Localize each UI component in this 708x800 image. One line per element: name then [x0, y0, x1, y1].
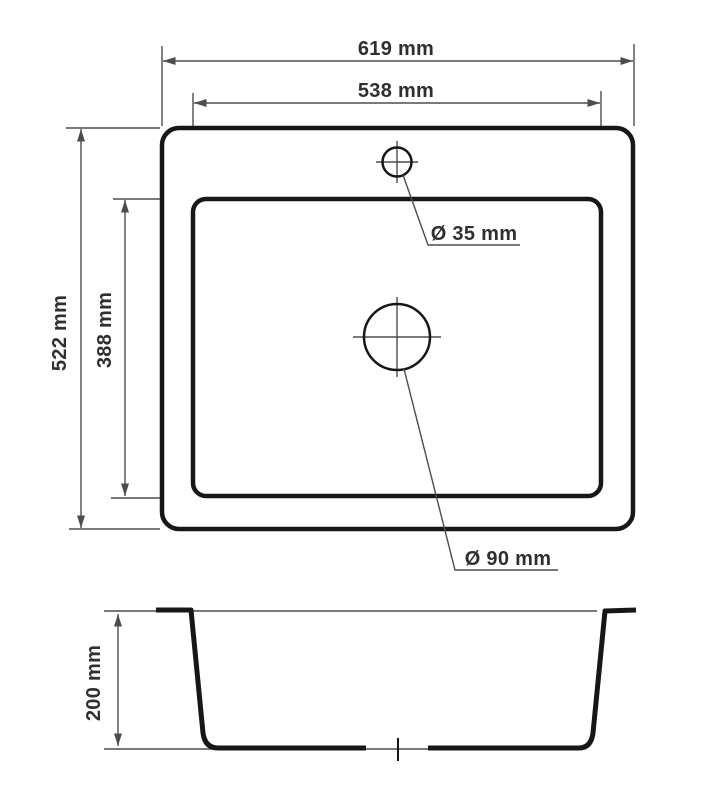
bowl-profile-right — [428, 610, 636, 748]
outer-width-label: 619 mm — [358, 38, 434, 60]
inner-width-label: 538 mm — [358, 80, 434, 102]
callout-faucet-diameter: Ø 35 mm — [403, 175, 520, 245]
drain-diameter-label: Ø 90 mm — [465, 548, 552, 570]
outer-depth-label: 522 mm — [49, 295, 71, 371]
dimension-inner-width: 538 mm — [193, 80, 601, 126]
leader-line — [404, 369, 558, 570]
bowl-depth-label: 200 mm — [83, 645, 105, 721]
section-view: 200 mm — [83, 610, 636, 761]
drawing-svg: 619 mm 538 mm 522 mm 388 mm — [0, 0, 708, 800]
dimension-bowl-depth: 200 mm — [83, 614, 118, 746]
drain-hole — [353, 297, 441, 377]
sink-technical-drawing: 619 mm 538 mm 522 mm 388 mm — [0, 0, 708, 800]
callout-drain-diameter: Ø 90 mm — [404, 369, 558, 570]
inner-depth-label: 388 mm — [94, 292, 116, 368]
dimension-inner-depth: 388 mm — [94, 199, 160, 498]
bowl-profile-left — [156, 610, 366, 748]
faucet-hole — [376, 141, 418, 183]
top-view: 619 mm 538 mm 522 mm 388 mm — [49, 38, 634, 570]
faucet-diameter-label: Ø 35 mm — [431, 223, 518, 245]
